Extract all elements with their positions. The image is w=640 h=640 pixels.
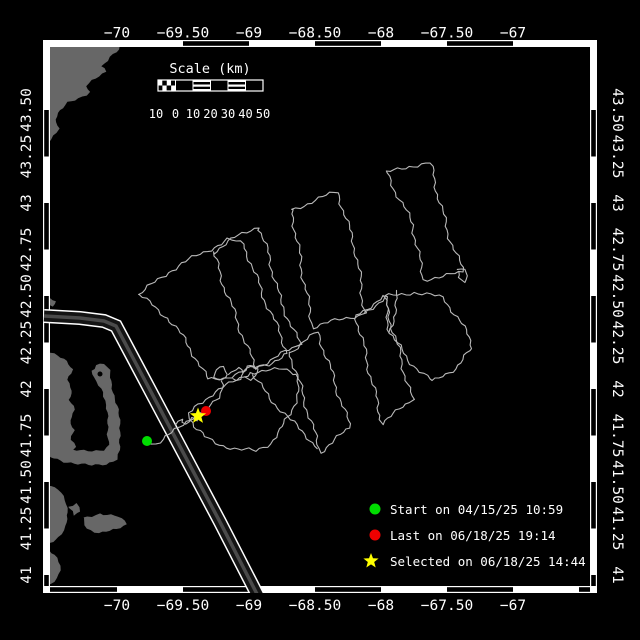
cape-hook-water bbox=[98, 372, 103, 377]
vehicle-track[interactable] bbox=[139, 163, 472, 453]
lat-tick-label-left: 41.25 bbox=[19, 507, 35, 551]
track-path[interactable] bbox=[292, 192, 367, 329]
lat-tick-label-right: 42.25 bbox=[609, 321, 625, 365]
scale-number: 30 bbox=[221, 107, 235, 121]
border-segment bbox=[591, 575, 596, 586]
legend-selected-star-icon bbox=[363, 553, 378, 568]
scale-number: 10 bbox=[186, 107, 200, 121]
track-path[interactable] bbox=[364, 297, 385, 312]
legend-label-selected: Selected on 06/18/25 14:44 bbox=[390, 554, 586, 569]
lat-tick-label-right: 41.50 bbox=[609, 460, 625, 504]
scale-number: 40 bbox=[238, 107, 252, 121]
legend-start-dot-icon bbox=[370, 504, 381, 515]
lat-tick-label-left: 42 bbox=[19, 380, 35, 397]
border-segment bbox=[447, 41, 513, 46]
border-segment bbox=[591, 203, 596, 250]
lon-tick-label-top: −68 bbox=[368, 26, 394, 42]
land-polygon bbox=[68, 503, 80, 516]
track-path[interactable] bbox=[355, 295, 415, 424]
legend-label-start: Start on 04/15/25 10:59 bbox=[390, 502, 563, 517]
lon-tick-label-bottom: −69.50 bbox=[157, 598, 209, 614]
lat-tick-label-left: 41.75 bbox=[19, 414, 35, 458]
border-segment bbox=[44, 203, 49, 250]
lon-tick-label-top: −69 bbox=[236, 26, 262, 42]
lat-tick-label-right: 42.50 bbox=[609, 274, 625, 318]
lon-tick-label-bottom: −68 bbox=[368, 598, 394, 614]
border-segment bbox=[591, 110, 596, 157]
legend: Start on 04/15/25 10:59 Last on 06/18/25… bbox=[363, 502, 585, 569]
map-canvas: −70−70−69.50−69.50−69−69−68.50−68.50−68−… bbox=[0, 0, 640, 640]
track-path[interactable] bbox=[386, 163, 463, 281]
track-path[interactable] bbox=[389, 290, 397, 332]
lon-tick-label-bottom: −67.50 bbox=[421, 598, 473, 614]
track-path[interactable] bbox=[385, 292, 472, 380]
lon-tick-label-top: −67.50 bbox=[421, 26, 473, 42]
lat-tick-label-left: 41 bbox=[19, 566, 35, 583]
lon-tick-label-bottom: −70 bbox=[104, 598, 130, 614]
land-polygon bbox=[45, 38, 124, 146]
lat-tick-label-left: 41.50 bbox=[19, 460, 35, 504]
start-marker[interactable] bbox=[142, 436, 152, 446]
border-segment bbox=[44, 482, 49, 529]
lat-tick-label-left: 42.50 bbox=[19, 274, 35, 318]
lon-tick-label-top: −67 bbox=[500, 26, 526, 42]
lat-tick-label-left: 43 bbox=[19, 194, 35, 211]
map-figure: −70−70−69.50−69.50−69−69−68.50−68.50−68−… bbox=[0, 0, 640, 640]
lat-tick-label-left: 42.75 bbox=[19, 228, 35, 272]
border-segment bbox=[579, 587, 590, 592]
border-segment bbox=[44, 110, 49, 157]
border-segment bbox=[591, 482, 596, 529]
lon-tick-label-bottom: −68.50 bbox=[289, 598, 341, 614]
lon-tick-label-bottom: −67 bbox=[500, 598, 526, 614]
border-segment bbox=[183, 41, 249, 46]
land-polygon bbox=[49, 298, 56, 307]
lat-tick-label-right: 41 bbox=[609, 566, 625, 583]
border-segment bbox=[447, 587, 513, 592]
scale-bar: 1001020304050 bbox=[149, 80, 270, 121]
scale-number: 50 bbox=[256, 107, 270, 121]
legend-last-dot-icon bbox=[370, 530, 381, 541]
land-polygon bbox=[45, 350, 120, 466]
scale-number: 0 bbox=[172, 107, 179, 121]
lon-tick-label-top: −68.50 bbox=[289, 26, 341, 42]
lat-tick-label-right: 41.75 bbox=[609, 414, 625, 458]
lat-tick-label-right: 42 bbox=[609, 380, 625, 397]
border-segment bbox=[591, 389, 596, 436]
lat-tick-label-left: 43.50 bbox=[19, 88, 35, 132]
lat-tick-label-left: 42.25 bbox=[19, 321, 35, 365]
border-segment bbox=[315, 587, 381, 592]
border-segment bbox=[44, 575, 49, 586]
border-segment bbox=[44, 389, 49, 436]
scale-number: 20 bbox=[203, 107, 217, 121]
legend-label-last: Last on 06/18/25 19:14 bbox=[390, 528, 556, 543]
land-polygon bbox=[83, 513, 127, 533]
track-path[interactable] bbox=[214, 228, 302, 369]
border-segment bbox=[591, 296, 596, 343]
scale-bar-title: Scale (km) bbox=[169, 61, 250, 77]
lat-tick-label-right: 42.75 bbox=[609, 228, 625, 272]
lat-tick-label-right: 41.25 bbox=[609, 507, 625, 551]
lat-tick-label-right: 43 bbox=[609, 194, 625, 211]
scale-number: 10 bbox=[149, 107, 163, 121]
track-path[interactable] bbox=[139, 238, 287, 380]
lat-tick-label-right: 43.25 bbox=[609, 135, 625, 179]
border-segment bbox=[183, 587, 249, 592]
lon-tick-label-top: −70 bbox=[104, 26, 130, 42]
lat-tick-label-right: 43.50 bbox=[609, 88, 625, 132]
lat-tick-label-left: 43.25 bbox=[19, 135, 35, 179]
lon-tick-label-top: −69.50 bbox=[157, 26, 209, 42]
border-segment bbox=[50, 587, 117, 592]
border-segment bbox=[315, 41, 381, 46]
track-path[interactable] bbox=[289, 332, 350, 453]
lon-tick-label-bottom: −69 bbox=[236, 598, 262, 614]
